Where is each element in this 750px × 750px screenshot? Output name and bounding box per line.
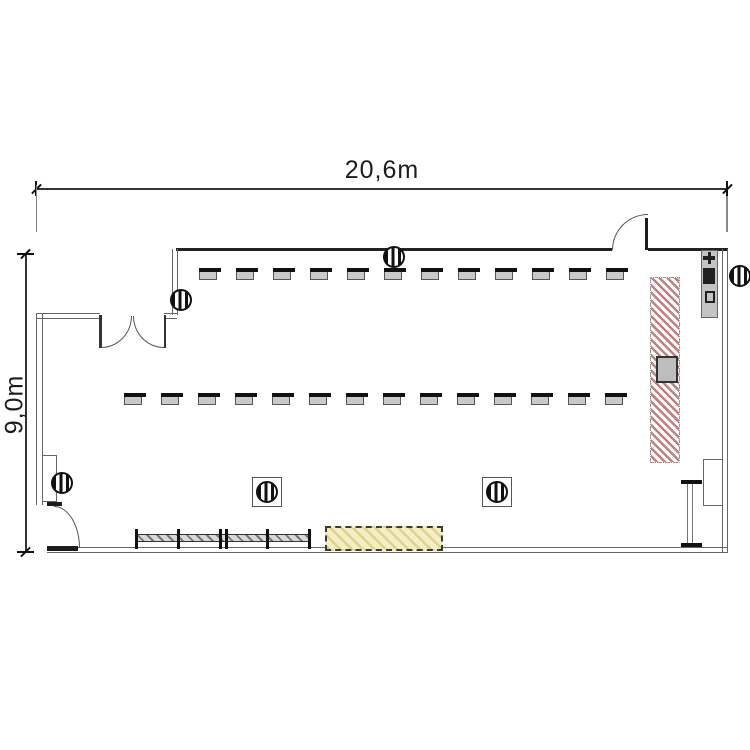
light-icon <box>256 481 278 503</box>
light-icon <box>170 289 192 311</box>
light-icon <box>729 265 750 287</box>
light-icon <box>383 246 405 268</box>
light-icon <box>51 472 73 494</box>
light-icon <box>486 481 508 503</box>
floor-plan: 20,6m 9,0m <box>0 0 750 750</box>
light-symbols-layer <box>0 0 750 750</box>
